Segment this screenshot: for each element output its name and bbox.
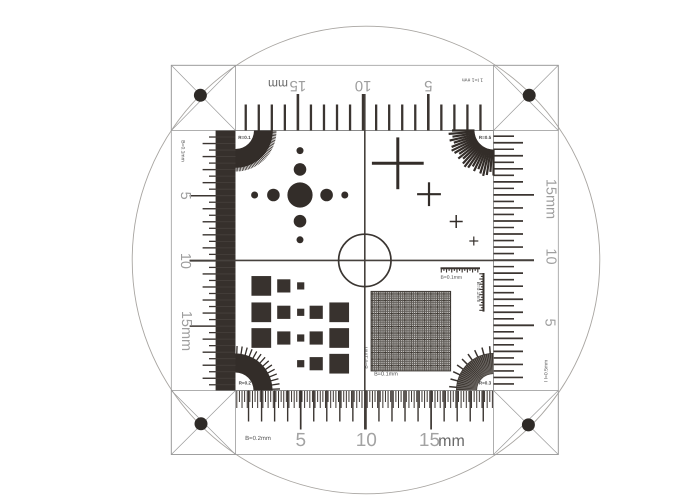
svg-text:B=0.1mm: B=0.1mm xyxy=(363,347,369,369)
svg-text:mm: mm xyxy=(268,77,288,91)
svg-text:15: 15 xyxy=(290,77,307,94)
svg-text:I I=0.5mm: I I=0.5mm xyxy=(544,360,550,382)
svg-text:B=0.1mm: B=0.1mm xyxy=(374,371,398,377)
svg-text:10: 10 xyxy=(356,430,377,451)
svg-text:5: 5 xyxy=(424,77,432,94)
svg-text:15mm: 15mm xyxy=(543,179,559,219)
svg-text:mm: mm xyxy=(438,433,465,450)
svg-text:R=0.1: R=0.1 xyxy=(238,135,251,140)
svg-text:5: 5 xyxy=(177,192,193,200)
svg-text:B=0.1mm: B=0.1mm xyxy=(179,140,185,162)
svg-text:10: 10 xyxy=(543,248,559,264)
svg-text:B=0.1mm: B=0.1mm xyxy=(441,275,463,281)
svg-text:1 I=1 mm: 1 I=1 mm xyxy=(462,77,483,83)
svg-text:B=0.2mm: B=0.2mm xyxy=(245,435,271,442)
svg-text:5: 5 xyxy=(295,430,306,451)
svg-text:10: 10 xyxy=(177,253,193,269)
svg-text:B=0.1mm: B=0.1mm xyxy=(475,282,481,303)
svg-text:15: 15 xyxy=(419,430,440,451)
svg-text:5: 5 xyxy=(542,318,558,326)
svg-text:R=0.3: R=0.3 xyxy=(479,380,492,385)
svg-text:R=0.2: R=0.2 xyxy=(239,380,252,385)
svg-text:R=0.5: R=0.5 xyxy=(479,135,492,140)
svg-text:10: 10 xyxy=(355,77,372,94)
svg-text:15mm: 15mm xyxy=(178,311,194,351)
